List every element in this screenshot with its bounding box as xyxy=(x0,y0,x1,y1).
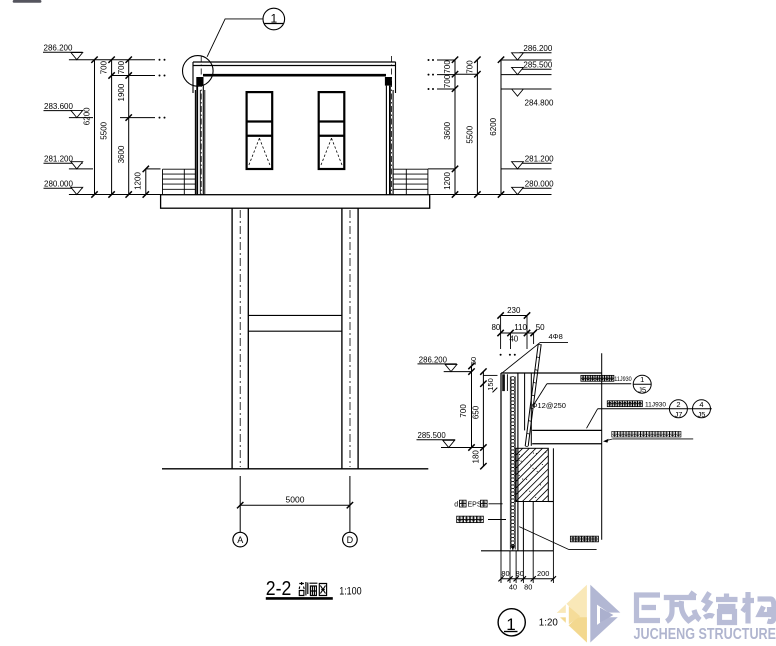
svg-text:3600: 3600 xyxy=(443,121,452,139)
svg-text:A: A xyxy=(237,535,243,545)
svg-text:80: 80 xyxy=(524,583,532,592)
svg-text:J5: J5 xyxy=(698,410,706,419)
svg-text:EPS: EPS xyxy=(468,502,482,509)
svg-text:650: 650 xyxy=(472,405,481,419)
svg-text:1900: 1900 xyxy=(117,83,126,101)
svg-text:281.200: 281.200 xyxy=(525,154,554,163)
svg-text:4Φ8: 4Φ8 xyxy=(549,332,563,341)
svg-text:700: 700 xyxy=(443,74,452,88)
svg-text:1200: 1200 xyxy=(134,172,143,190)
svg-text:1200: 1200 xyxy=(443,172,452,190)
svg-text:50: 50 xyxy=(469,357,478,365)
svg-text:J7: J7 xyxy=(674,410,682,419)
svg-text:1: 1 xyxy=(640,375,644,384)
svg-text:6200: 6200 xyxy=(489,117,498,135)
svg-text:180: 180 xyxy=(472,450,481,464)
svg-text:5500: 5500 xyxy=(465,125,474,143)
svg-text:283.600: 283.600 xyxy=(44,102,73,111)
svg-text:2: 2 xyxy=(676,400,680,409)
svg-text:JUCHENG STRUCTURE: JUCHENG STRUCTURE xyxy=(634,626,776,643)
svg-text:50: 50 xyxy=(536,323,545,332)
svg-text:286.200: 286.200 xyxy=(419,355,448,364)
svg-text:3600: 3600 xyxy=(117,145,126,163)
svg-text:Φ12@250: Φ12@250 xyxy=(532,401,566,410)
svg-text:80: 80 xyxy=(491,323,500,332)
svg-text:280.000: 280.000 xyxy=(44,179,73,188)
svg-text:80: 80 xyxy=(516,569,524,578)
svg-text:150: 150 xyxy=(486,378,495,391)
svg-text:d: d xyxy=(454,502,458,509)
svg-text:284.800: 284.800 xyxy=(525,99,554,108)
svg-text:285.500: 285.500 xyxy=(523,61,552,70)
svg-text:200: 200 xyxy=(537,569,549,578)
svg-text:110: 110 xyxy=(514,323,527,332)
svg-text:1:100: 1:100 xyxy=(339,585,362,597)
svg-text:J5: J5 xyxy=(638,386,646,395)
svg-text:80: 80 xyxy=(501,569,509,578)
svg-text:700: 700 xyxy=(100,60,109,74)
svg-text:280.000: 280.000 xyxy=(525,179,554,188)
svg-text:1:20: 1:20 xyxy=(539,617,558,629)
svg-text:D: D xyxy=(347,535,354,545)
svg-text:5500: 5500 xyxy=(100,121,109,139)
svg-text:286.200: 286.200 xyxy=(523,44,552,53)
svg-text:40: 40 xyxy=(509,583,517,592)
svg-text:5000: 5000 xyxy=(286,494,305,504)
svg-text:11J930: 11J930 xyxy=(645,402,666,409)
svg-text:2-2: 2-2 xyxy=(266,578,292,600)
svg-text:285.500: 285.500 xyxy=(418,431,447,440)
svg-text:230: 230 xyxy=(507,306,521,315)
svg-text:700: 700 xyxy=(117,60,126,74)
svg-text:700: 700 xyxy=(443,60,452,74)
svg-text:4: 4 xyxy=(699,400,703,409)
svg-text:11J930: 11J930 xyxy=(614,376,632,383)
svg-text:286.200: 286.200 xyxy=(44,44,73,53)
svg-text:700: 700 xyxy=(459,404,468,418)
svg-text:700: 700 xyxy=(465,60,474,74)
svg-text:6200: 6200 xyxy=(82,107,91,125)
svg-text:281.200: 281.200 xyxy=(44,154,73,163)
